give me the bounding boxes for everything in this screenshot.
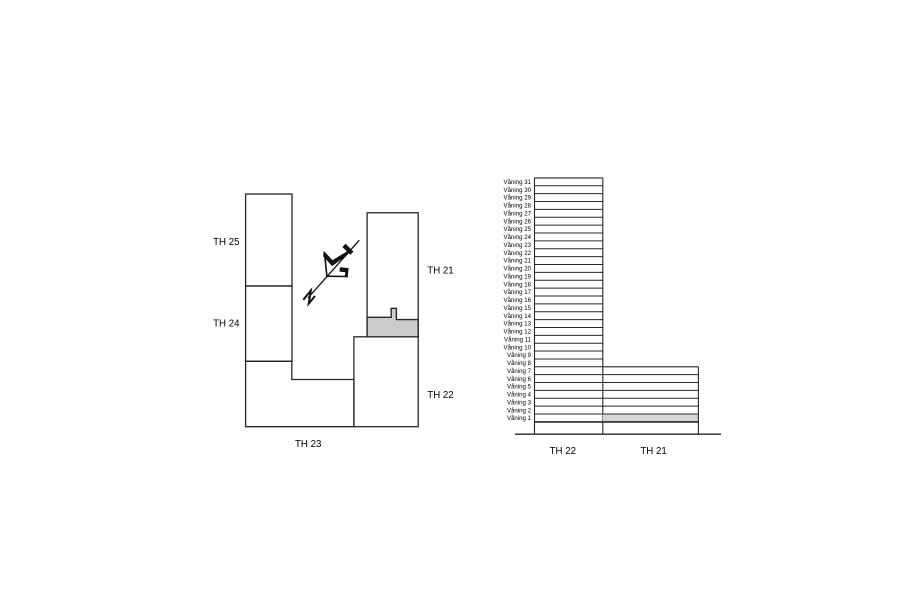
svg-text:Våning 17: Våning 17 bbox=[504, 289, 532, 296]
svg-text:Våning 7: Våning 7 bbox=[507, 368, 532, 375]
svg-text:TH 22: TH 22 bbox=[427, 390, 453, 401]
svg-text:Våning 26: Våning 26 bbox=[504, 218, 532, 225]
svg-text:Våning 1: Våning 1 bbox=[507, 415, 532, 422]
svg-text:Våning 2: Våning 2 bbox=[507, 407, 532, 414]
svg-text:Våning 12: Våning 12 bbox=[504, 329, 532, 336]
svg-text:Våning 16: Våning 16 bbox=[504, 297, 532, 304]
svg-text:Våning 22: Våning 22 bbox=[504, 250, 532, 257]
svg-text:Våning 23: Våning 23 bbox=[504, 242, 532, 249]
svg-text:Våning 13: Våning 13 bbox=[504, 321, 532, 328]
svg-text:Våning 8: Våning 8 bbox=[507, 360, 532, 367]
svg-text:Våning 14: Våning 14 bbox=[504, 313, 532, 320]
svg-text:TH 23: TH 23 bbox=[295, 439, 321, 450]
svg-text:Våning 27: Våning 27 bbox=[504, 210, 532, 217]
svg-text:Våning 15: Våning 15 bbox=[504, 305, 532, 312]
svg-text:Våning 11: Våning 11 bbox=[504, 336, 532, 343]
svg-text:TH 24: TH 24 bbox=[213, 319, 240, 330]
svg-text:Våning 18: Våning 18 bbox=[504, 281, 532, 288]
svg-text:TH 21: TH 21 bbox=[640, 446, 666, 457]
svg-text:Våning 20: Våning 20 bbox=[504, 266, 532, 273]
svg-text:Våning 19: Våning 19 bbox=[504, 273, 532, 280]
svg-text:Våning 5: Våning 5 bbox=[507, 384, 532, 391]
svg-text:Våning 28: Våning 28 bbox=[504, 203, 532, 210]
svg-text:TH 22: TH 22 bbox=[550, 446, 576, 457]
svg-text:Våning 3: Våning 3 bbox=[507, 400, 532, 407]
svg-text:Våning 21: Våning 21 bbox=[504, 258, 532, 265]
svg-text:Våning 6: Våning 6 bbox=[507, 376, 532, 383]
svg-text:Våning 10: Våning 10 bbox=[504, 344, 532, 351]
svg-text:Våning 30: Våning 30 bbox=[504, 187, 532, 194]
svg-text:Våning 9: Våning 9 bbox=[507, 352, 532, 359]
svg-text:Våning 25: Våning 25 bbox=[504, 226, 532, 233]
svg-text:Våning 24: Våning 24 bbox=[504, 234, 532, 241]
svg-text:Våning 29: Våning 29 bbox=[504, 195, 532, 202]
svg-text:TH 25: TH 25 bbox=[213, 237, 239, 248]
svg-text:TH 21: TH 21 bbox=[427, 266, 453, 277]
svg-text:Våning 31: Våning 31 bbox=[504, 179, 532, 186]
svg-text:Våning 4: Våning 4 bbox=[507, 392, 532, 399]
